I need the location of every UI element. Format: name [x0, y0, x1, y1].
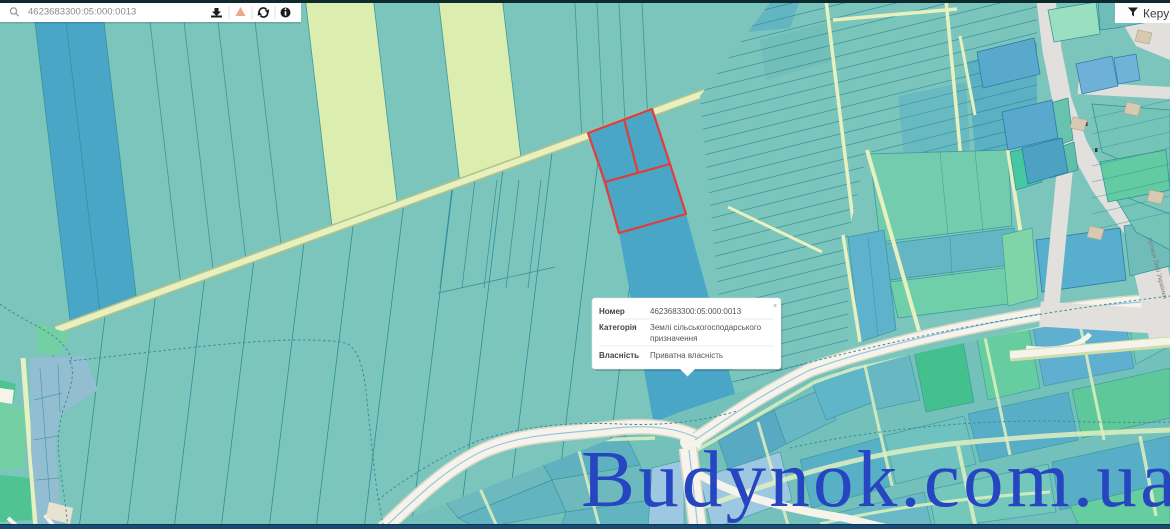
svg-text:×: ×: [773, 303, 777, 310]
svg-text:Землі сільськогосподарського: Землі сільськогосподарського: [650, 323, 762, 332]
svg-text:Керу: Керу: [1143, 7, 1169, 21]
svg-text:4623683300:05:000:0013: 4623683300:05:000:0013: [650, 307, 742, 316]
svg-text:Власність: Власність: [599, 351, 639, 360]
svg-text:Budynok.com.ua: Budynok.com.ua: [581, 434, 1170, 524]
svg-text:4623683300:05:000:0013: 4623683300:05:000:0013: [28, 7, 136, 18]
svg-text:Приватна власність: Приватна власність: [650, 351, 723, 360]
svg-text:Категорія: Категорія: [599, 323, 637, 332]
svg-text:Номер: Номер: [599, 307, 625, 316]
svg-text:призначення: призначення: [650, 334, 697, 343]
